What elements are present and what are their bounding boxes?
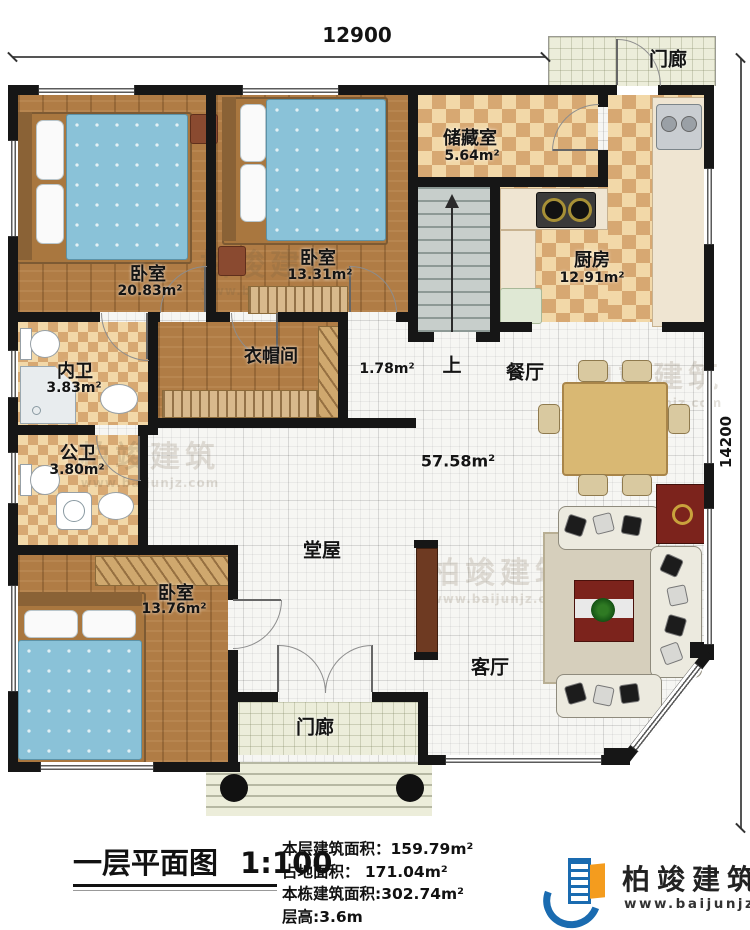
wall-segment (490, 322, 532, 332)
chair (578, 360, 608, 382)
washing-machine-drum (63, 500, 85, 522)
area-label: 3.80m² (49, 462, 104, 478)
wall-segment (8, 545, 238, 555)
sink (100, 384, 138, 414)
wall-segment (408, 332, 434, 342)
bed-headboard (16, 112, 32, 260)
sofa-cushion (619, 683, 640, 704)
plant (591, 598, 615, 622)
area-label: 3.83m² (46, 380, 101, 396)
pillow (36, 120, 64, 180)
kitchen-sink-basin (661, 116, 677, 132)
area-label: 57.58m² (421, 452, 495, 471)
window (445, 755, 602, 765)
wall-segment (8, 312, 100, 322)
stats-line: 层高:3.6m (282, 906, 473, 929)
chair (538, 404, 560, 434)
wall-segment (408, 85, 418, 342)
room-label: 厨房 (574, 246, 610, 272)
shower-drain (32, 406, 41, 415)
bed-quilt (66, 114, 188, 260)
wall-segment (206, 312, 230, 322)
room-label: 衣帽间 (244, 342, 298, 368)
wall-segment (148, 312, 160, 322)
area-label: 12.91m² (559, 270, 624, 286)
dimension-line (740, 58, 742, 828)
wall-segment (418, 177, 608, 187)
stairs (418, 187, 490, 332)
window (8, 350, 18, 398)
pillow (82, 610, 136, 638)
stove-burner (568, 198, 592, 222)
window (242, 85, 339, 95)
window (704, 508, 714, 645)
wardrobe (318, 326, 340, 418)
brand-site: www.baijunjz.com (624, 896, 750, 912)
room-label: 门廊 (296, 713, 334, 740)
toilet-bowl (30, 330, 60, 358)
room-label: 堂屋 (303, 536, 341, 563)
brand-company: 柏竣建筑 (622, 858, 750, 898)
area-label: 20.83m² (117, 283, 182, 299)
entry-column-right (396, 774, 424, 802)
stove-burner (542, 198, 566, 222)
chair (668, 404, 690, 434)
area-label: 13.76m² (141, 601, 206, 617)
wall-segment (476, 332, 500, 342)
tv-cabinet-medallion (672, 504, 693, 525)
stats-line: 占地面积： 171.04m² (282, 861, 473, 884)
room-label: 餐厅 (506, 358, 544, 385)
logo-building-icon (568, 858, 591, 904)
bed-quilt (266, 99, 386, 241)
wall-segment (206, 95, 216, 312)
title-underline (73, 884, 277, 887)
stats-block: 本层建筑面积：159.79m² 占地面积： 171.04m² 本栋建筑面积:30… (282, 838, 473, 928)
wall-segment (228, 545, 238, 600)
chair (578, 474, 608, 496)
window (8, 452, 18, 504)
wall-segment (228, 692, 278, 702)
room-label: 门廊 (649, 45, 687, 72)
stairs-arrow-head (445, 194, 459, 208)
wall-segment (228, 650, 238, 772)
sofa-cushion (592, 684, 615, 707)
chair (622, 474, 652, 496)
tv-wall (416, 548, 438, 654)
stats-line: 本层建筑面积：159.79m² (282, 838, 473, 861)
pillow (240, 104, 266, 162)
fridge (500, 288, 542, 324)
area-label: 1.78m² (359, 361, 414, 377)
window (38, 85, 135, 95)
dimension-label: 14200 (717, 416, 735, 468)
dining-table (562, 382, 668, 476)
wall-segment (278, 312, 348, 322)
wall-segment (662, 322, 704, 332)
title-underline-thin (73, 890, 277, 891)
window (704, 168, 714, 245)
wall-segment (148, 418, 416, 428)
wall-segment (598, 150, 608, 187)
dimension-line (12, 56, 545, 58)
bed-headboard (16, 592, 142, 606)
room-label: 储藏室 (443, 124, 497, 150)
pillow (36, 184, 64, 244)
kitchen-sink-basin (681, 116, 697, 132)
wall-segment (598, 95, 608, 107)
window (8, 140, 18, 237)
area-label: 5.64m² (444, 148, 499, 164)
sink (98, 492, 134, 520)
wardrobe (248, 286, 348, 314)
window (704, 370, 714, 464)
wall-segment (8, 425, 95, 435)
window (40, 762, 154, 772)
entry-column-left (220, 774, 248, 802)
logo-building-icon (590, 863, 605, 899)
stairs-arrow-line (451, 208, 453, 332)
plan-title-text: 一层平面图 (73, 846, 218, 880)
area-label: 13.31m² (287, 267, 352, 283)
floor-plan: 柏竣建筑 www.baijunjz.com 柏竣建筑 www.baijunjz.… (0, 0, 750, 930)
wall-segment (338, 322, 348, 418)
window (8, 585, 18, 692)
wall-segment (604, 748, 630, 765)
brand-logo: 柏竣建筑 www.baijunjz.com (540, 852, 740, 922)
bed-headboard (222, 97, 236, 241)
wall-segment (490, 185, 500, 342)
nightstand (218, 246, 246, 276)
room-label: 客厅 (471, 653, 509, 680)
wardrobe (162, 390, 318, 418)
stats-line: 本栋建筑面积:302.74m² (282, 883, 473, 906)
pillow (24, 610, 78, 638)
wall-segment (414, 540, 438, 548)
pillow (240, 164, 266, 222)
dimension-label: 12900 (322, 23, 392, 47)
wall-segment (148, 322, 158, 425)
chair (622, 360, 652, 382)
sofa-cushion (620, 514, 642, 536)
bed-quilt (18, 640, 142, 760)
sofa-cushion (666, 584, 689, 607)
wall-segment (414, 652, 438, 660)
stairs-up-label: 上 (442, 351, 461, 378)
